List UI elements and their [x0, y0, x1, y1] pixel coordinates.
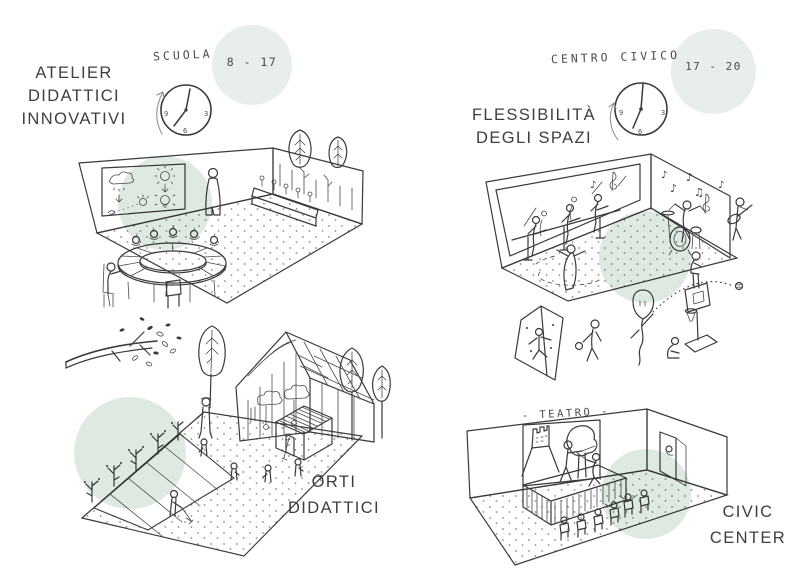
ball-icon — [576, 343, 583, 350]
civic-hours: 17 - 20 — [671, 60, 756, 73]
svg-text:3: 3 — [204, 110, 208, 118]
ball-icon — [736, 283, 743, 290]
sword-icon — [582, 446, 595, 451]
atelier-title: ATELIER DIDATTICI INNOVATIVI — [6, 62, 142, 131]
civic-center-title: CIVIC CENTER — [698, 499, 798, 551]
music-note-icon: ♪ — [590, 180, 596, 191]
dribbling-figure — [576, 320, 602, 361]
treble-clef-icon — [610, 172, 617, 191]
peeking-figure — [666, 446, 672, 452]
counterclockwise-arrow-icon — [609, 103, 618, 140]
orti-title-line1: ORTI — [278, 469, 390, 495]
theater-scene: - TEATRO - — [448, 383, 800, 581]
climbing-frame — [515, 306, 563, 380]
branch-icon — [66, 316, 182, 368]
civic-clock-icon: 9 3 6 — [604, 76, 676, 148]
basketball-hoop-icon — [685, 283, 717, 352]
sports-scene — [505, 278, 750, 390]
orti-title-line2: DIDATTICI — [278, 495, 390, 521]
balloon-head-figure — [631, 290, 654, 365]
dancer-at-barre — [528, 217, 546, 257]
front-chair — [166, 280, 181, 308]
svg-text:6: 6 — [638, 128, 642, 136]
stage-sign: - TEATRO - — [522, 405, 611, 422]
music-note-icon: ♪ — [718, 180, 724, 191]
civic-center-title-line2: CENTER — [698, 525, 798, 551]
centro-civico-label: CENTRO CIVICO — [551, 48, 680, 66]
atelier-title-line1: ATELIER — [6, 62, 142, 85]
orti-title: ORTI DIDATTICI — [278, 469, 390, 521]
climbing-child-figure — [526, 324, 554, 359]
stage-backdrop — [522, 420, 600, 486]
castle-backdrop — [522, 426, 559, 476]
wall-music-notes: ♪ ♪ ♪ ♫ ♪ — [661, 170, 724, 213]
green-highlight — [74, 397, 186, 509]
civic-center-title-line1: CIVIC — [698, 499, 798, 525]
green-highlight — [118, 156, 212, 250]
garden-scene — [52, 310, 392, 574]
flexibility-title: FLESSIBILITÀ DEGLI SPAZI — [464, 104, 604, 150]
trees-behind-wall — [289, 130, 347, 168]
music-note-icon: ♪ — [661, 170, 667, 181]
seated-person-left — [103, 263, 121, 307]
music-note-icon: ♫ — [694, 186, 704, 199]
flexibility-title-line1: FLESSIBILITÀ — [464, 104, 604, 127]
scuola-hours: 8 - 17 — [212, 55, 292, 69]
classroom-scene — [66, 124, 378, 314]
green-highlight — [601, 449, 691, 539]
music-note-icon: ♪ — [670, 182, 677, 195]
kneeling-figure — [668, 338, 679, 359]
svg-text:3: 3 — [661, 109, 665, 117]
diagram-canvas: ATELIER DIDATTICI INNOVATIVI SCUOLA 8 - … — [0, 0, 800, 581]
atelier-title-line2: DIDATTICI — [6, 85, 142, 108]
svg-text:9: 9 — [164, 110, 168, 118]
svg-text:9: 9 — [619, 109, 623, 117]
music-note-icon: ♪ — [686, 171, 693, 184]
scuola-schedule-label: SCUOLA — [153, 46, 213, 63]
room-walls — [79, 148, 363, 303]
